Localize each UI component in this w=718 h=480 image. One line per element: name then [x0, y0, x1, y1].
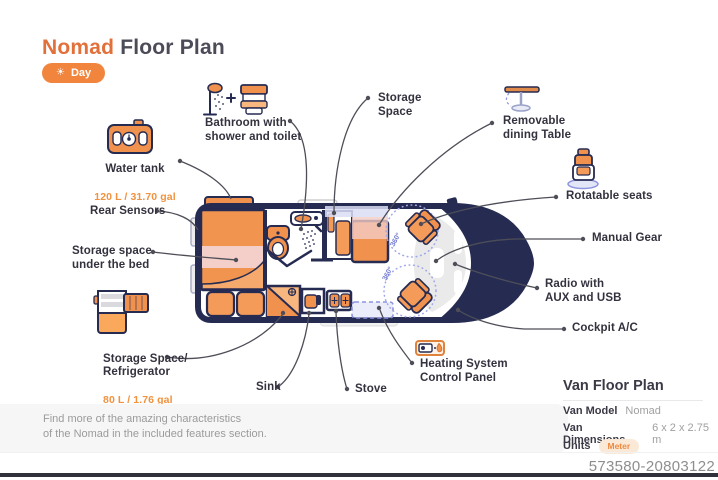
note-text: Find more of the amazing characteristics… [43, 412, 523, 442]
callout-storage-under-bed: Storage space under the bed [72, 245, 152, 272]
day-mode-label: Day [71, 67, 91, 79]
bed [201, 210, 265, 290]
callout-sink: Sink [256, 381, 281, 395]
refrigerator-label: Storage Space/ Refrigerator [103, 353, 188, 380]
details-divider [563, 400, 703, 401]
sun-icon: ☀ [56, 68, 65, 78]
dining-table-icon [505, 87, 539, 111]
callout-rear-sensors: Rear Sensors [90, 205, 165, 219]
day-mode-toggle[interactable]: ☀ Day [42, 63, 105, 83]
callout-storage-space: Storage Space [378, 92, 422, 119]
water-tank-capacity: 120 L / 31.70 gal [80, 191, 190, 205]
callout-stove: Stove [355, 383, 387, 397]
shower-toilet-icon [204, 84, 267, 115]
callout-radio: Radio with AUX and USB [545, 278, 622, 305]
swivel-seat-icon [568, 149, 598, 189]
bottom-bar [0, 473, 718, 477]
van-model-value: Nomad [625, 405, 660, 417]
page-title: NomadFloor Plan [42, 36, 225, 60]
heating-panel-icon [416, 341, 444, 355]
toilet [267, 226, 289, 259]
details-panel-title: Van Floor Plan [563, 378, 664, 394]
callout-manual-gear: Manual Gear [592, 232, 662, 246]
bathroom-sink [291, 212, 323, 225]
kitchen-sink [302, 289, 324, 313]
callout-bathroom: Bathroom with shower and toilet [205, 117, 301, 144]
van-model-label: Van Model [563, 405, 617, 417]
van-model-row: Van Model Nomad [563, 405, 661, 417]
callout-rotatable-seats: Rotatable seats [566, 190, 653, 204]
callout-cockpit-ac: Cockpit A/C [572, 322, 638, 336]
stove-shape [327, 291, 351, 310]
refrigerator-icon [94, 291, 148, 333]
card-bottom-edge [0, 452, 718, 453]
dinette-bench [326, 211, 352, 259]
page-title-rest: Floor Plan [120, 36, 225, 59]
water-tank-label: Water tank [80, 163, 190, 177]
callout-dining-table: Removable dining Table [503, 115, 571, 142]
units-label: Units [563, 440, 591, 452]
floor-plan-page: 360° 360° [0, 0, 718, 480]
van-dimensions-value: 6 x 2 x 2.75 m [652, 422, 718, 446]
page-title-brand: Nomad [42, 36, 114, 59]
callout-heating: Heating System Control Panel [420, 358, 508, 385]
